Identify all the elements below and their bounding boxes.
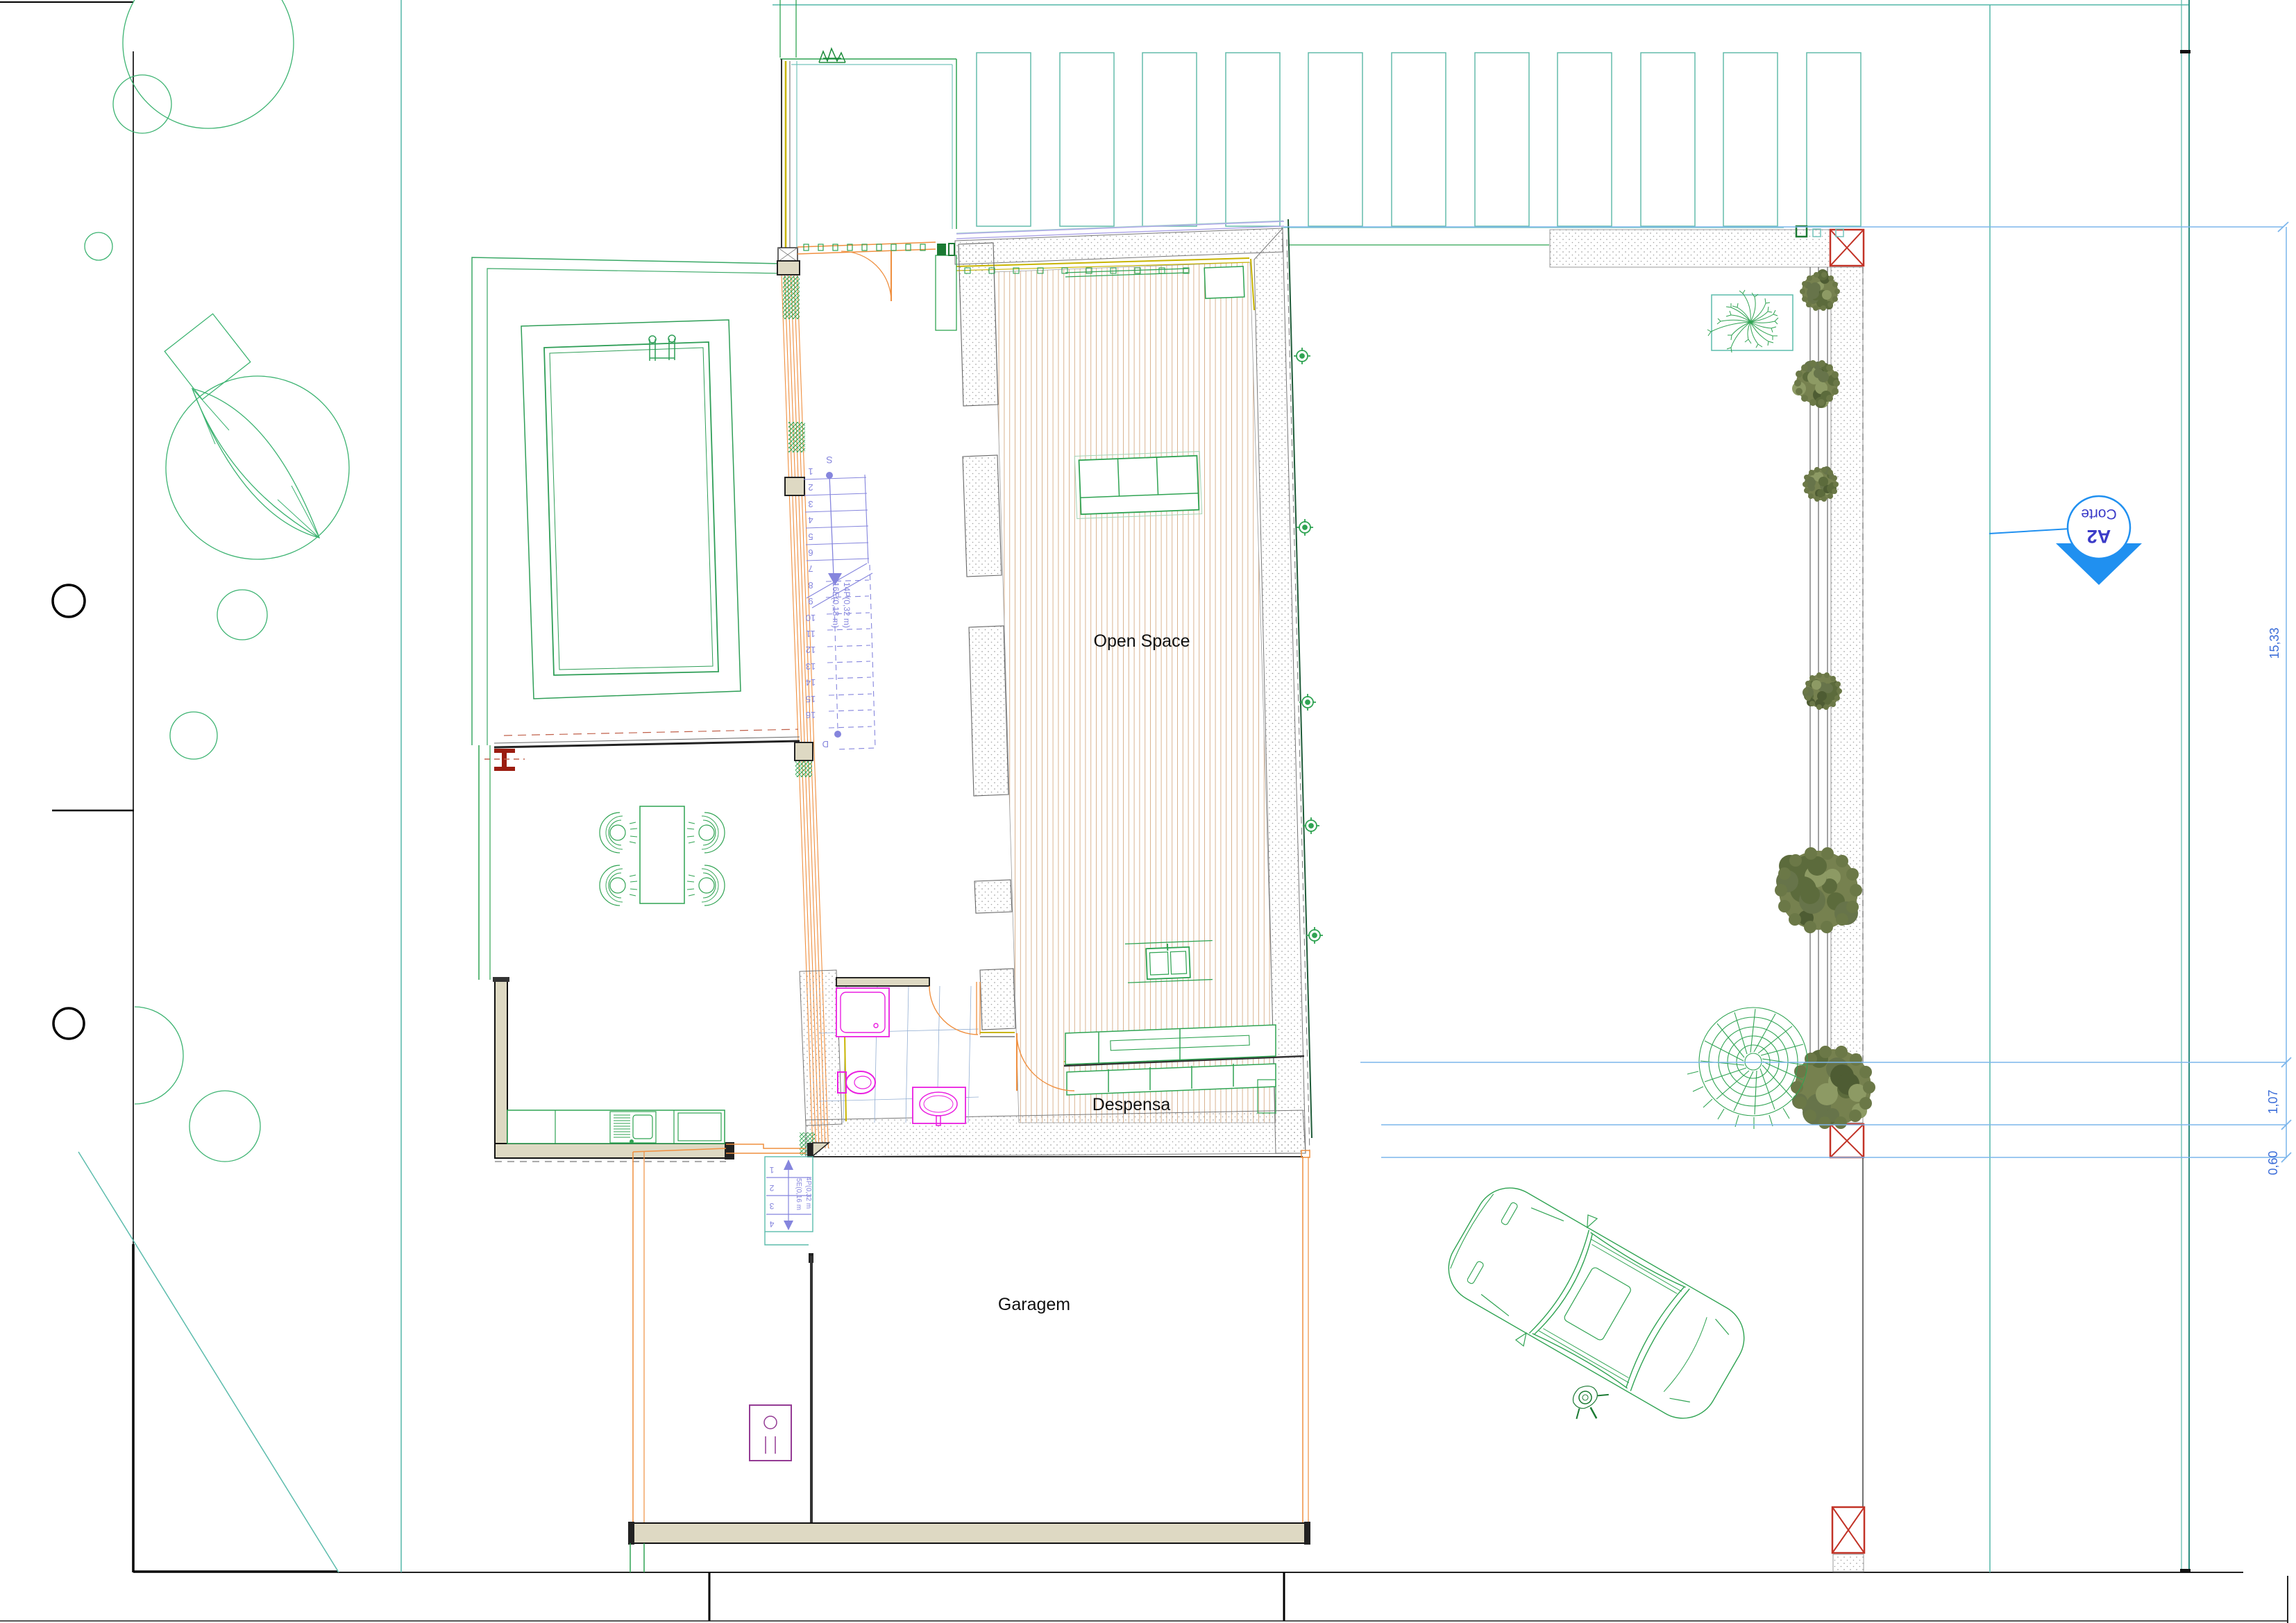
svg-text:A2: A2 (2087, 526, 2111, 547)
svg-text:0,60: 0,60 (2266, 1150, 2280, 1175)
svg-text:Despensa: Despensa (1092, 1095, 1171, 1114)
svg-text:10: 10 (806, 613, 816, 623)
svg-text:Garagem: Garagem (998, 1295, 1070, 1314)
svg-text:Corte: Corte (2081, 506, 2116, 522)
svg-text:4: 4 (808, 515, 813, 525)
svg-text:9: 9 (808, 596, 813, 606)
svg-text:4P(0,32 m: 4P(0,32 m (804, 1177, 812, 1209)
svg-text:1: 1 (769, 1165, 774, 1175)
svg-text:15: 15 (806, 694, 816, 704)
svg-text:5: 5 (808, 532, 813, 542)
svg-text:15,33: 15,33 (2268, 627, 2281, 658)
svg-text:4: 4 (769, 1219, 774, 1229)
svg-text:3: 3 (808, 499, 813, 509)
svg-text:6: 6 (808, 547, 813, 558)
svg-text:7: 7 (808, 563, 813, 574)
svg-text:2: 2 (769, 1183, 774, 1193)
svg-text:1,07: 1,07 (2266, 1089, 2280, 1114)
svg-text:16: 16 (806, 710, 816, 720)
svg-text:D: D (822, 739, 829, 749)
svg-text:12: 12 (806, 645, 816, 655)
svg-text:3: 3 (769, 1201, 774, 1211)
svg-text:11: 11 (806, 629, 816, 639)
svg-text:2: 2 (808, 482, 813, 493)
svg-text:5E(0,16 m: 5E(0,16 m (795, 1178, 802, 1210)
svg-text:1: 1 (808, 466, 813, 477)
svg-text:16E(0,18 m): 16E(0,18 m) (831, 582, 841, 628)
svg-text:S: S (826, 454, 832, 466)
svg-text:Open Space: Open Space (1094, 631, 1190, 651)
svg-text:13: 13 (806, 661, 816, 672)
svg-text:14P(0,32 m): 14P(0,32 m) (842, 582, 852, 628)
svg-text:14: 14 (806, 677, 816, 688)
svg-text:8: 8 (808, 580, 813, 590)
